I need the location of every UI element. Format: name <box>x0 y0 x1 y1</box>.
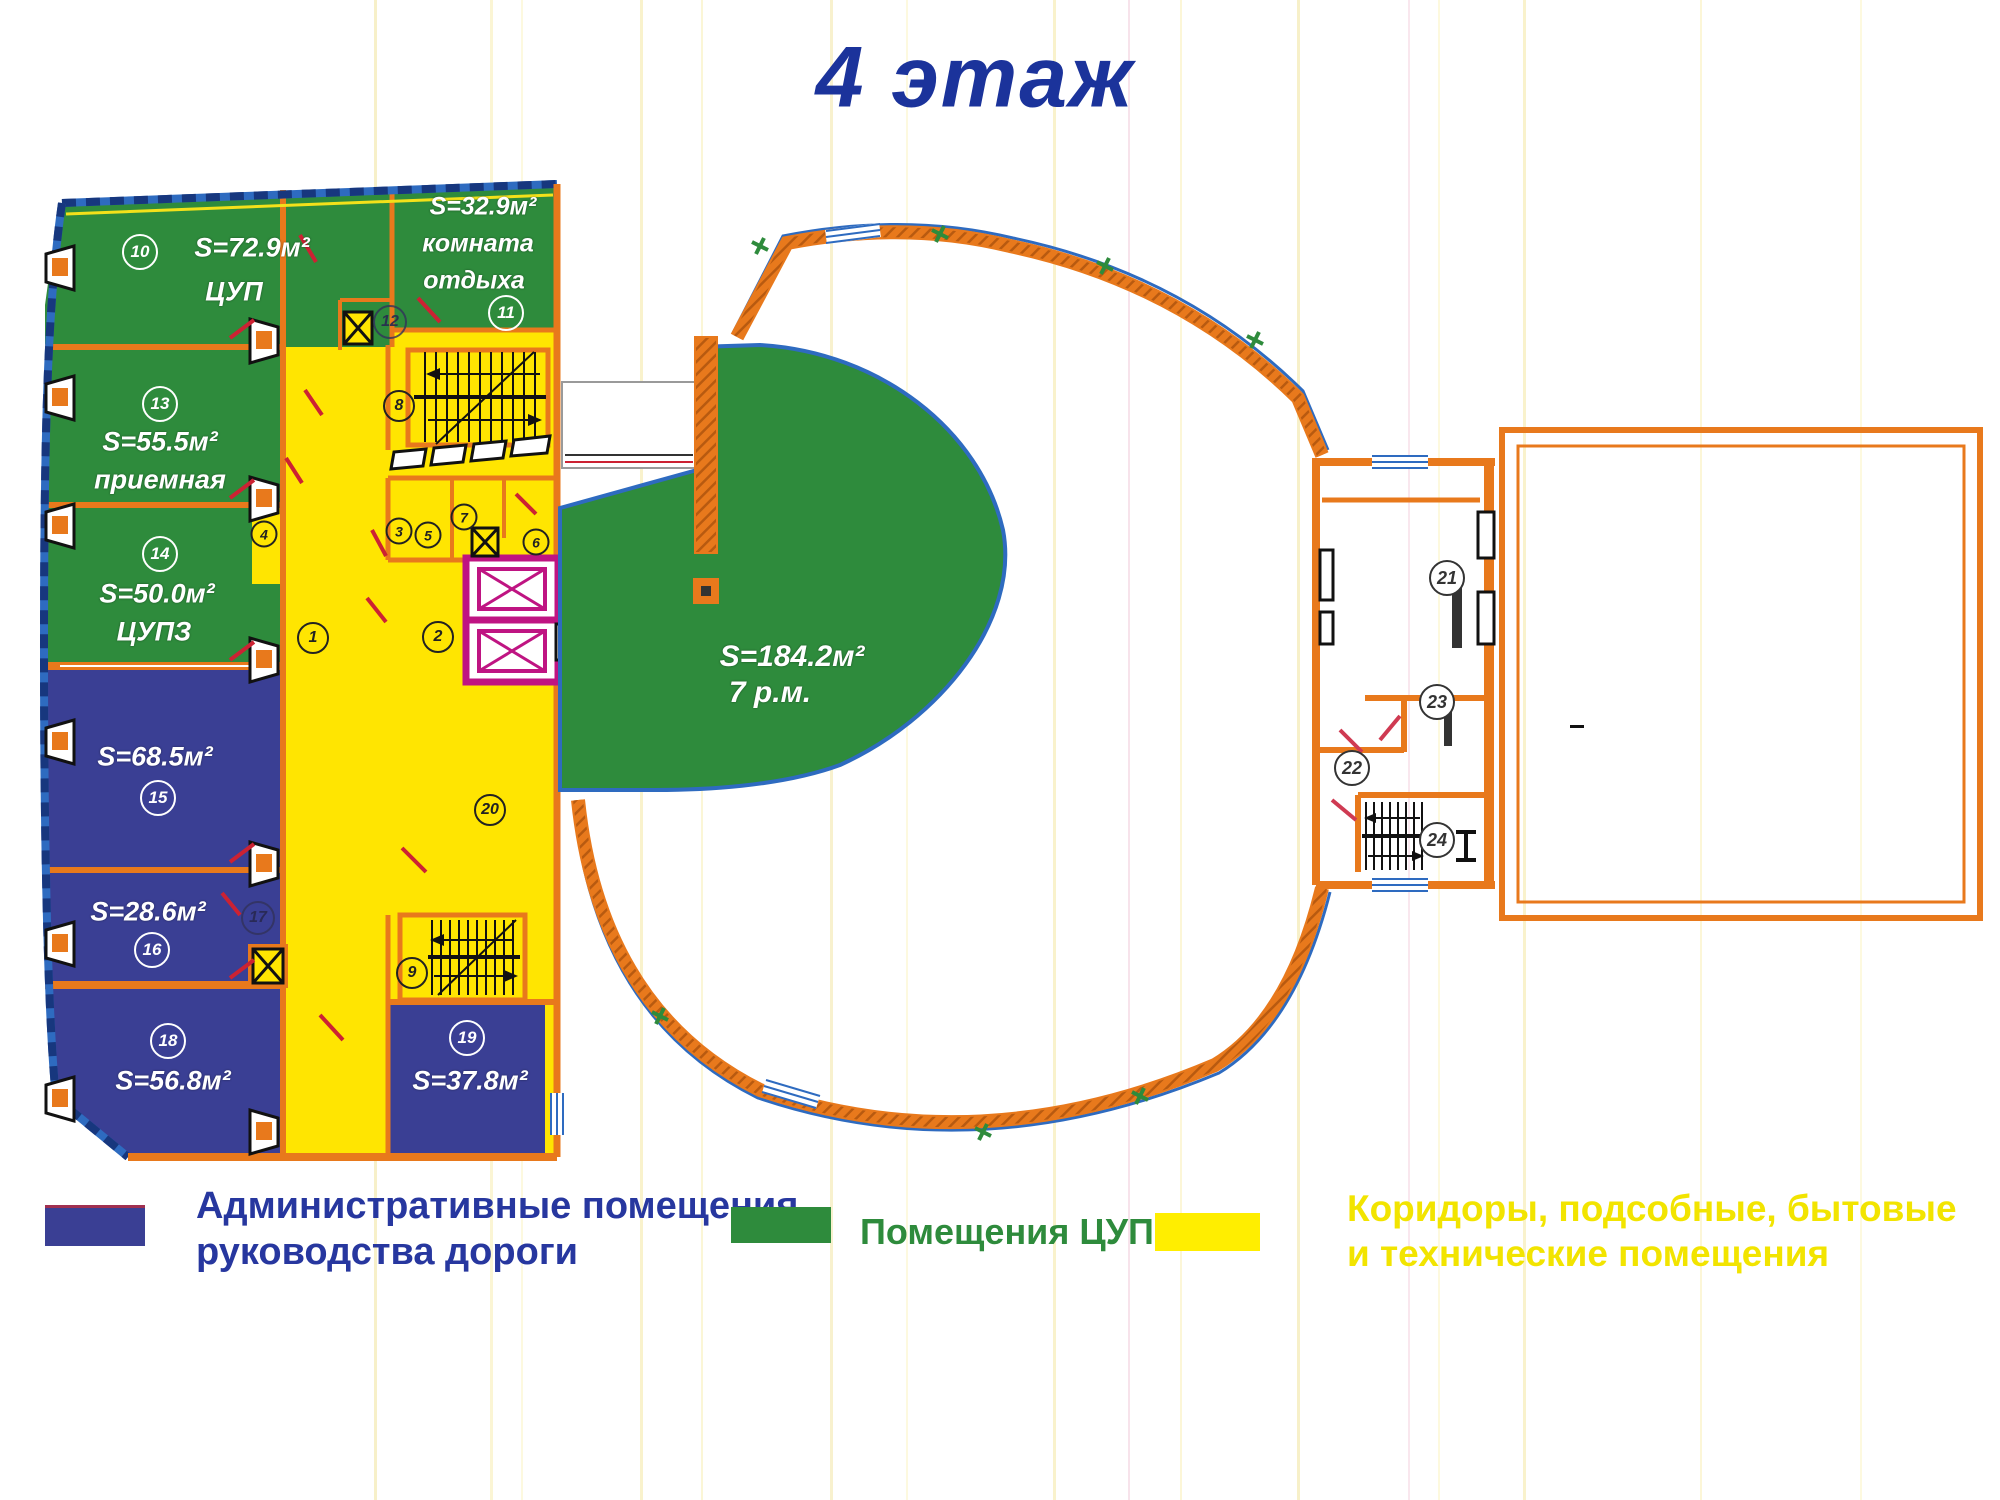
corridor-2-number: 2 <box>422 621 454 653</box>
room-13-name: приемная <box>94 467 226 494</box>
legend-corridor-line1: Коридоры, подсобные, бытовые <box>1347 1186 1957 1231</box>
room-4-number: 4 <box>251 521 278 548</box>
corridor-1-number: 1 <box>297 622 329 654</box>
room-19-number: 19 <box>449 1020 485 1056</box>
legend-admin-label: Административные помещения руководства д… <box>196 1183 798 1276</box>
room-7-number: 7 <box>451 504 478 531</box>
hall-pier-wall <box>695 337 717 553</box>
room-11-number: 11 <box>488 295 524 331</box>
room-16-area: S=28.6м² <box>90 899 205 926</box>
room-11-area: S=32.9м² <box>430 195 537 220</box>
legend-admin-line2: руководства дороги <box>196 1229 798 1275</box>
room-22-number: 22 <box>1334 750 1370 786</box>
legend-admin-swatch <box>45 1205 145 1246</box>
stair-9-number: 9 <box>396 957 428 989</box>
room-17-number: 17 <box>241 901 275 935</box>
room-14-number: 14 <box>142 536 178 572</box>
room-11-name-1: комната <box>422 232 534 257</box>
room-13-area: S=55.5м² <box>102 429 217 456</box>
room-10-area: S=72.9м² <box>194 235 309 262</box>
staircase-right <box>1362 802 1428 870</box>
room-18-number: 18 <box>150 1023 186 1059</box>
room-15-number: 15 <box>140 780 176 816</box>
room-13-number: 13 <box>142 386 178 422</box>
room-16-number: 16 <box>134 932 170 968</box>
wall-slot <box>1452 588 1462 648</box>
room-21-number: 21 <box>1429 560 1465 596</box>
room-3-number: 3 <box>386 518 413 545</box>
room-6-number: 6 <box>523 529 550 556</box>
room-14-area: S=50.0м² <box>99 581 214 608</box>
room-10-number: 10 <box>122 234 158 270</box>
floor-plan-page: { "title": "4 этаж", "rooms": { "r10": {… <box>0 0 2000 1500</box>
corridor-20-number: 20 <box>474 794 506 826</box>
room-12-number: 12 <box>373 305 407 339</box>
white-room <box>562 382 695 468</box>
hall-name: 7 р.м. <box>729 678 811 708</box>
legend-corridor-label: Коридоры, подсобные, бытовые и техническ… <box>1347 1186 1957 1276</box>
room-10-name: ЦУП <box>205 279 262 306</box>
i-beam-symbol <box>1456 832 1476 860</box>
legend-cup-swatch <box>731 1207 831 1243</box>
legend-admin-line1: Административные помещения <box>196 1183 798 1229</box>
room-24-number: 24 <box>1419 822 1455 858</box>
legend-corridor-line2: и технические помещения <box>1347 1231 1957 1276</box>
room-19-area: S=37.8м² <box>412 1068 527 1095</box>
hall-area: S=184.2м² <box>720 642 865 672</box>
room-11-name-2: отдыха <box>423 269 524 294</box>
room-18-area: S=56.8м² <box>115 1068 230 1095</box>
roof-square <box>1502 430 1980 918</box>
right-building <box>1316 456 1584 891</box>
room-15-area: S=68.5м² <box>97 744 212 771</box>
room-14-name: ЦУПЗ <box>117 619 192 646</box>
room-23-number: 23 <box>1419 684 1455 720</box>
right-building-windows <box>1372 456 1428 891</box>
stair-8-number: 8 <box>383 390 415 422</box>
legend-corridor-swatch <box>1155 1213 1260 1251</box>
room-5-number: 5 <box>415 522 442 549</box>
legend-cup-label: Помещения ЦУП <box>860 1210 1154 1254</box>
page-title: 4 этаж <box>816 29 1135 128</box>
